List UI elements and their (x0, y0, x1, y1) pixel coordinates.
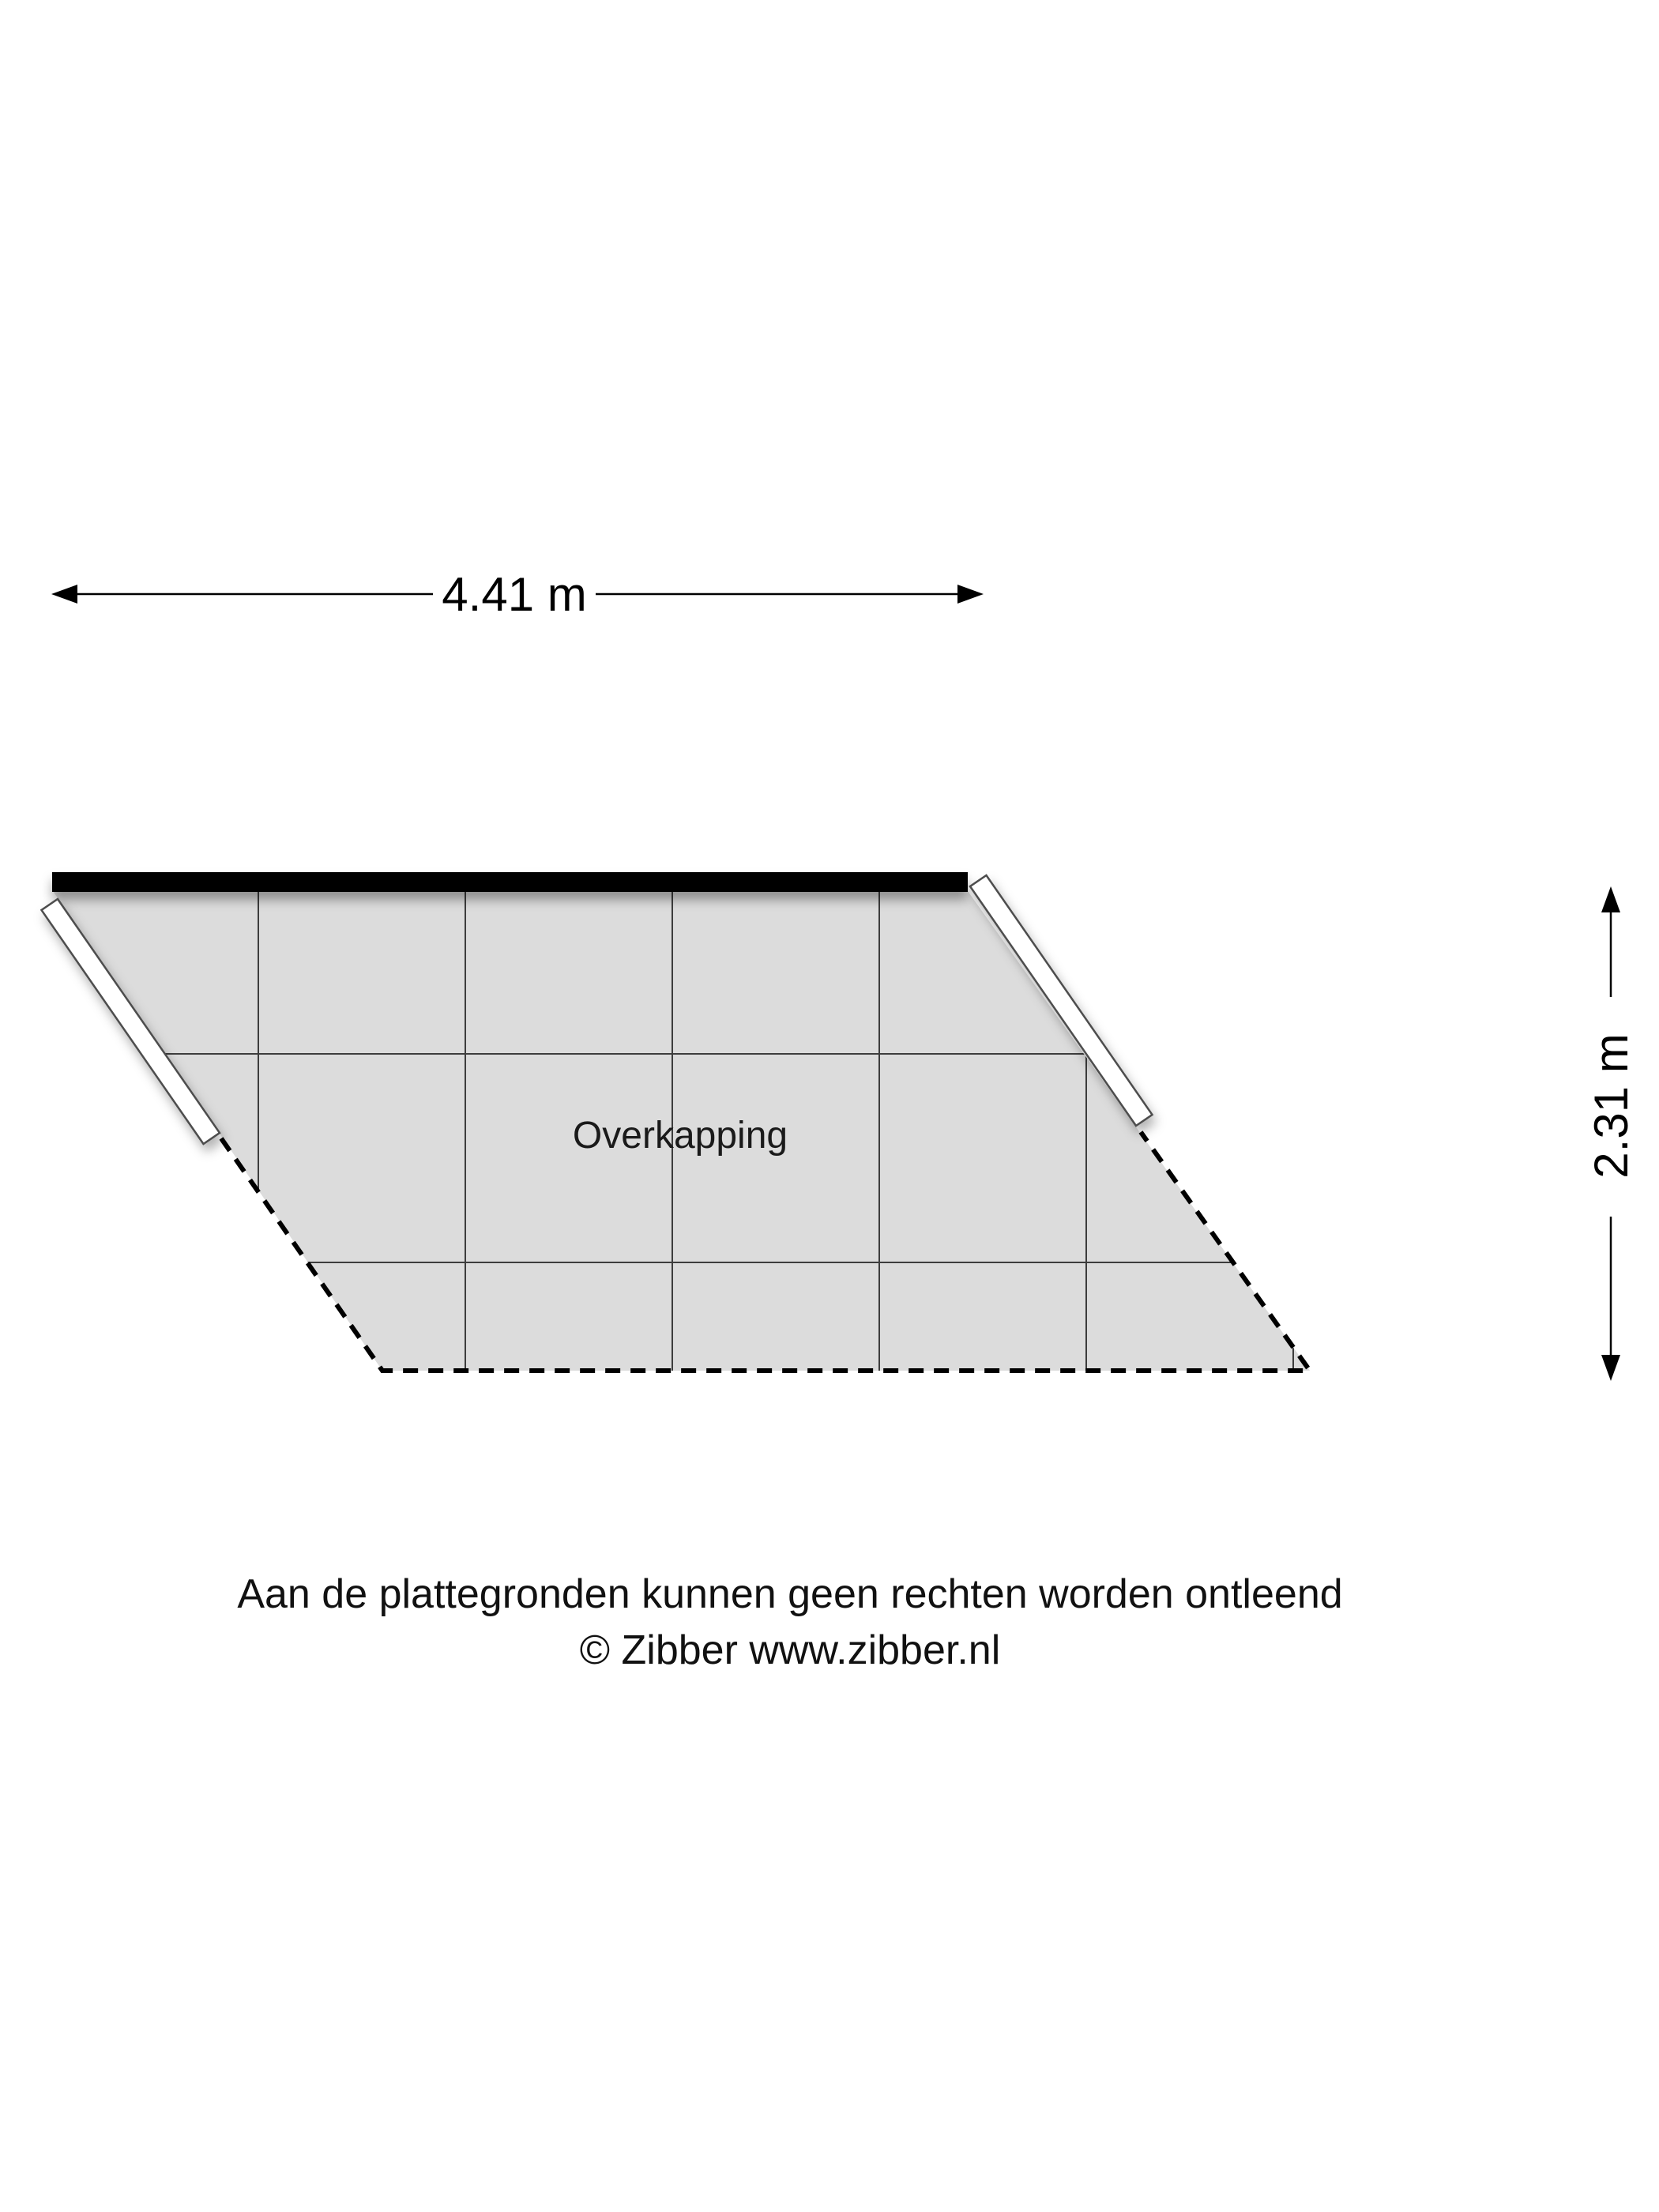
floorplan-drawing: 4.41 m 2.31 m (0, 0, 1659, 2212)
footer-credit: © Zibber www.zibber.nl (0, 1623, 1580, 1679)
height-dimension-label: 2.31 m (1585, 1033, 1638, 1178)
arrowhead-right-icon (957, 585, 984, 604)
floorplan-page: 4.41 m 2.31 m (0, 0, 1659, 2212)
arrowhead-up-icon (1601, 886, 1620, 912)
arrowhead-left-icon (51, 585, 77, 604)
room-label: Overkapping (573, 1115, 788, 1157)
height-dimension: 2.31 m (1585, 886, 1638, 1381)
footer-disclaimer: Aan de plattegronden kunnen geen rechten… (0, 1567, 1580, 1623)
footer: Aan de plattegronden kunnen geen rechten… (0, 1567, 1580, 1679)
width-dimension-label: 4.41 m (442, 568, 586, 621)
top-wall (52, 872, 968, 892)
width-dimension: 4.41 m (51, 568, 984, 621)
arrowhead-down-icon (1601, 1355, 1620, 1381)
